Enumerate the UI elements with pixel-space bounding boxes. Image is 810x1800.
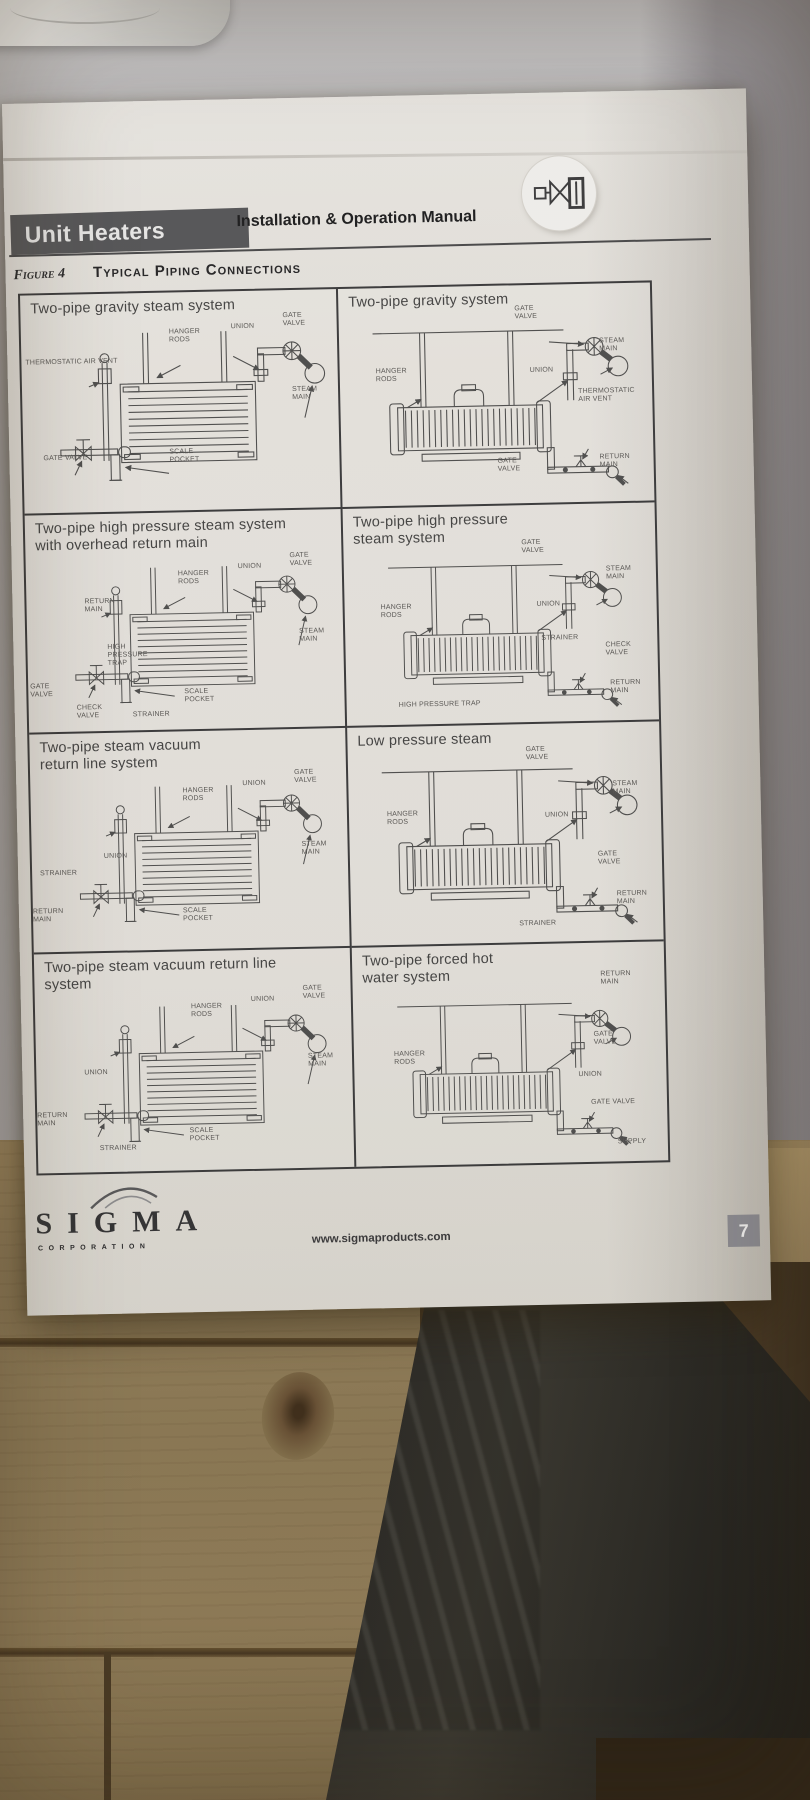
panel-two-pipe-gravity-steam-system: Two-pipe gravity steam system HANGER ROD… (20, 289, 343, 515)
label-gate-valve: GATE VALVE (30, 682, 64, 699)
unit-heater-logo-icon (521, 156, 597, 232)
plastic-wrap-object (0, 0, 230, 46)
panel-two-pipe-steam-vacuum-return-line: Two-pipe steam vacuum return line system… (29, 728, 352, 954)
label-steam-main: STEAM MAIN (606, 564, 644, 581)
label-thermostatic-air-vent: THERMOSTATIC AIR VENT (578, 387, 646, 404)
label-scale-pocket: SCALE POCKET (184, 687, 228, 704)
page-title: Unit Heaters (24, 217, 165, 248)
label-hanger-rods: HANGER RODS (387, 810, 437, 827)
label-strainer: STRAINER (519, 920, 556, 929)
panel-low-pressure-steam: Low pressure steam GATE VALVE STEAM MAIN… (347, 721, 664, 947)
label-gate-valve: GATE VALVE (303, 984, 341, 1001)
panel-two-pipe-high-pressure-steam-system: Two-pipe high pressure steam system GATE… (343, 502, 660, 728)
label-steam-main: STEAM MAIN (299, 627, 337, 644)
label-scale-pocket: SCALE POCKET (169, 448, 213, 465)
sigma-corporation-text: CORPORATION (38, 1243, 151, 1252)
panel-title: Two-pipe steam vacuum return line system (44, 954, 315, 994)
label-gate-valve: GATE VALVE (282, 311, 320, 328)
label-return-main: RETURN MAIN (33, 908, 73, 925)
panel-two-pipe-high-pressure-overhead-return: Two-pipe high pressure steam system with… (25, 508, 348, 734)
label-steam-main: STEAM MAIN (599, 337, 637, 354)
panel-title: Two-pipe gravity steam system (30, 296, 310, 319)
panel-title: Two-pipe steam vacuum return line system (39, 737, 210, 775)
label-return-main: RETURN MAIN (599, 453, 643, 470)
label-union: UNION (238, 562, 262, 570)
label-union: UNION (84, 1068, 108, 1076)
label-union: UNION (231, 323, 255, 331)
label-union: UNION (104, 853, 128, 861)
label-hanger-rods: HANGER RODS (191, 1002, 241, 1019)
label-hanger-rods: HANGER RODS (169, 328, 219, 345)
panel-title: Two-pipe gravity system (348, 289, 628, 312)
page-number: 7 (739, 1220, 749, 1241)
label-gate-valve: GATE VALVE (514, 305, 552, 322)
label-hanger-rods: HANGER RODS (394, 1049, 444, 1066)
website-url: www.sigmaproducts.com (312, 1231, 451, 1246)
piping-diagram (350, 749, 664, 941)
label-union: UNION (537, 600, 561, 608)
label-strainer: STRAINER (40, 870, 77, 879)
label-scale-pocket: SCALE POCKET (189, 1126, 233, 1143)
label-high-pressure-trap: HIGH PRESSURE TRAP (107, 642, 163, 667)
label-check-valve: CHECK VALVE (605, 640, 645, 657)
paper-fold-line (3, 150, 747, 161)
section-title-bar: Unit Heaters (10, 208, 249, 255)
label-hanger-rods: HANGER RODS (178, 569, 228, 586)
panel-title: Two-pipe high pressure steam system (353, 510, 534, 548)
panel-title: Low pressure steam (357, 728, 637, 751)
panel-title: Two-pipe high pressure steam system with… (35, 515, 308, 555)
label-gate-valve: GATE VALVE (498, 457, 536, 474)
label-union: UNION (545, 811, 569, 819)
sigma-logo: SIGMA CORPORATION (29, 1178, 201, 1272)
label-gate-valve: GATE VALVE (594, 1030, 632, 1047)
label-return-main: RETURN MAIN (617, 889, 661, 906)
figure-title: Typical Piping Connections (93, 260, 301, 281)
label-strainer: STRAINER (100, 1144, 137, 1153)
figure-caption: Figure 4 Typical Piping Connections (13, 260, 301, 284)
label-hanger-rods: HANGER RODS (182, 786, 232, 803)
label-gate-valve: GATE VALVE (294, 768, 332, 785)
label-supply: SUPPLY (618, 1137, 646, 1146)
label-return-main: RETURN MAIN (610, 678, 654, 695)
label-strainer: STRAINER (133, 710, 170, 719)
label-union: UNION (578, 1070, 602, 1078)
label-steam-main: STEAM MAIN (292, 385, 330, 402)
label-return-main: RETURN MAIN (37, 1111, 77, 1128)
sigma-brand-text: SIGMA (35, 1204, 212, 1242)
label-gate-valve: GATE VALVE (526, 745, 564, 762)
page-number-badge: 7 (727, 1214, 760, 1247)
panel-two-pipe-steam-vacuum-return-line-2: Two-pipe steam vacuum return line system… (34, 947, 357, 1173)
label-steam-main: STEAM MAIN (301, 840, 339, 857)
label-steam-main: STEAM MAIN (308, 1052, 346, 1069)
label-steam-main: STEAM MAIN (612, 780, 650, 797)
label-return-main: RETURN MAIN (84, 597, 128, 614)
label-hanger-rods: HANGER RODS (381, 603, 431, 620)
figure-label: Figure 4 (13, 266, 65, 284)
label-check-valve: CHECK VALVE (77, 703, 117, 720)
label-union: UNION (242, 780, 266, 788)
plank-gap (104, 1652, 111, 1800)
manual-title: Installation & Operation Manual (236, 208, 476, 231)
piping-diagram (355, 985, 668, 1161)
piping-diagrams-grid: Two-pipe gravity steam system HANGER ROD… (18, 280, 670, 1175)
panel-two-pipe-forced-hot-water: Two-pipe forced hot water system RETURN … (352, 941, 669, 1167)
label-gate-valve: GATE VALVE (598, 850, 636, 867)
photo-of-manual-page: Unit Heaters Installation & Operation Ma… (0, 0, 810, 1800)
label-gate-valve: GATE VALVE (591, 1097, 668, 1107)
label-union: UNION (251, 995, 275, 1003)
label-gate-valve: GATE VALVE (43, 454, 115, 464)
label-hanger-rods: HANGER RODS (376, 367, 426, 384)
piping-diagram (23, 317, 337, 509)
panel-two-pipe-gravity-system: Two-pipe gravity system GATE VALVE STEAM… (338, 282, 655, 508)
floor-shadow (596, 1738, 810, 1800)
label-return-main: RETURN MAIN (600, 969, 644, 986)
label-union: UNION (530, 367, 554, 375)
label-gate-valve: GATE VALVE (289, 551, 327, 568)
label-gate-valve: GATE VALVE (521, 538, 559, 555)
label-strainer: STRAINER (541, 634, 578, 643)
manual-page: Unit Heaters Installation & Operation Ma… (2, 88, 771, 1315)
label-scale-pocket: SCALE POCKET (183, 906, 227, 923)
panel-title: Two-pipe forced hot water system (362, 950, 513, 987)
